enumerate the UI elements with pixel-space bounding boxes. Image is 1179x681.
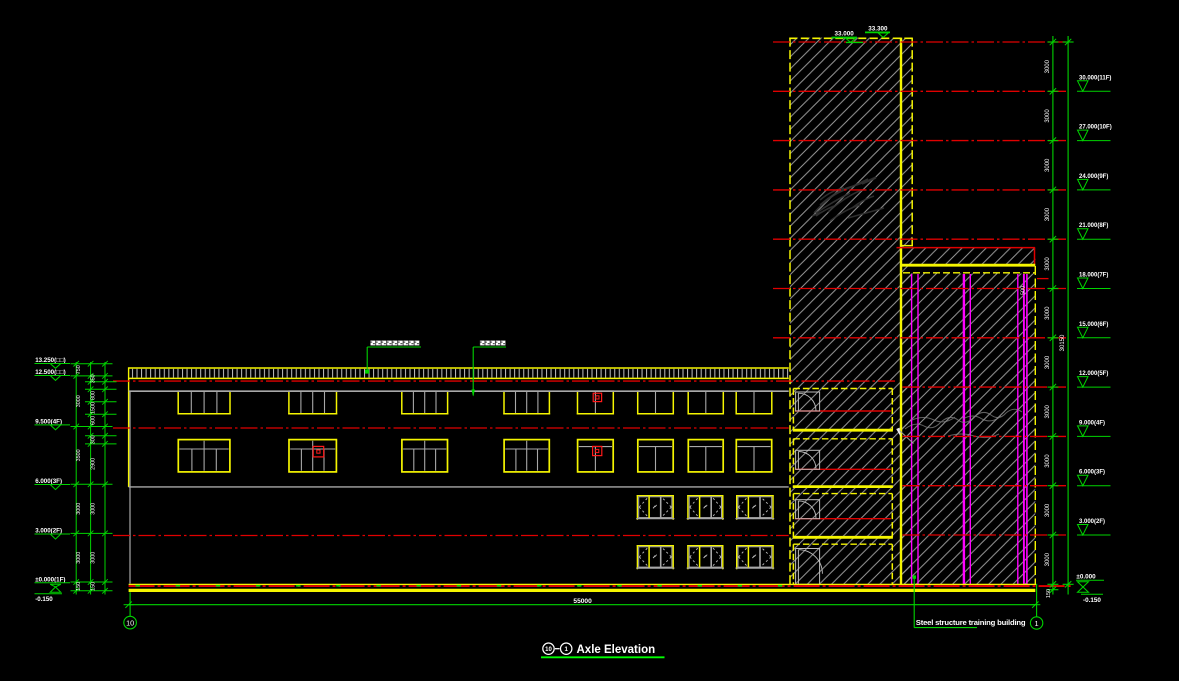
svg-text:Axle Elevation: Axle Elevation [577,644,656,656]
svg-text:800: 800 [90,391,96,400]
svg-text:6.000(3F): 6.000(3F) [1079,470,1105,476]
svg-text:3000: 3000 [1045,207,1051,221]
svg-text:3000: 3000 [90,503,96,515]
svg-text:21.000(8F): 21.000(8F) [1079,223,1108,229]
svg-text:-0.150: -0.150 [35,596,53,603]
svg-text:15.000(6F): 15.000(6F) [1079,322,1108,328]
svg-text:3000: 3000 [76,395,82,407]
svg-text:10: 10 [126,618,134,627]
svg-text:±0.000: ±0.000 [1076,573,1096,580]
svg-text:1: 1 [1035,619,1039,628]
svg-text:3000: 3000 [1045,355,1051,369]
svg-text:300: 300 [90,435,96,444]
svg-text:-0.150: -0.150 [1083,597,1101,604]
svg-text:1: 1 [564,646,568,653]
svg-text:3000: 3000 [1045,454,1051,468]
svg-text:3000: 3000 [1045,503,1051,517]
svg-text:3000: 3000 [1045,552,1051,566]
svg-text:150: 150 [76,582,82,591]
svg-text:13.250(□□): 13.250(□□) [35,357,66,364]
svg-text:2900: 2900 [90,458,96,470]
svg-text:3000: 3000 [1045,109,1051,123]
svg-text:150: 150 [90,582,96,591]
svg-text:3000: 3000 [1045,306,1051,320]
svg-text:12.000(5F): 12.000(5F) [1079,371,1108,377]
svg-text:600: 600 [90,416,96,425]
svg-text:3000: 3000 [76,552,82,564]
svg-text:±0.000(1F): ±0.000(1F) [35,576,65,583]
svg-text:3500: 3500 [76,449,82,461]
svg-text:33.000: 33.000 [835,30,855,37]
svg-text:3.000(2F): 3.000(2F) [35,528,62,535]
svg-text:9.500(4F): 9.500(4F) [35,418,62,425]
svg-text:6.000(3F): 6.000(3F) [35,478,62,485]
svg-text:3000: 3000 [1045,404,1051,418]
svg-text:3000: 3000 [90,552,96,564]
svg-text:Steel structure training build: Steel structure training building [916,618,1026,627]
svg-text:3000: 3000 [1045,59,1051,73]
svg-text:3000: 3000 [76,503,82,515]
svg-text:350: 350 [90,374,96,383]
svg-text:1500: 1500 [90,402,96,414]
svg-text:3.000(2F): 3.000(2F) [1079,519,1105,525]
svg-text:27.000(10F): 27.000(10F) [1079,125,1112,131]
svg-text:33.300: 33.300 [868,25,888,32]
svg-text:24.000(9F): 24.000(9F) [1079,174,1108,180]
svg-text:10: 10 [545,647,552,653]
svg-text:18.000(7F): 18.000(7F) [1079,273,1108,279]
svg-text:55000: 55000 [573,598,592,605]
svg-text:150: 150 [1046,589,1052,598]
svg-text:12.500(□□): 12.500(□□) [35,369,66,376]
svg-text:750: 750 [76,365,82,374]
svg-text:30.000(11F): 30.000(11F) [1079,75,1111,81]
svg-text:30150: 30150 [1060,334,1066,351]
svg-text:3000: 3000 [1045,257,1051,271]
svg-text:9.000(4F): 9.000(4F) [1079,420,1105,426]
svg-text:3000: 3000 [1045,158,1051,172]
svg-text:500: 500 [1021,286,1027,295]
